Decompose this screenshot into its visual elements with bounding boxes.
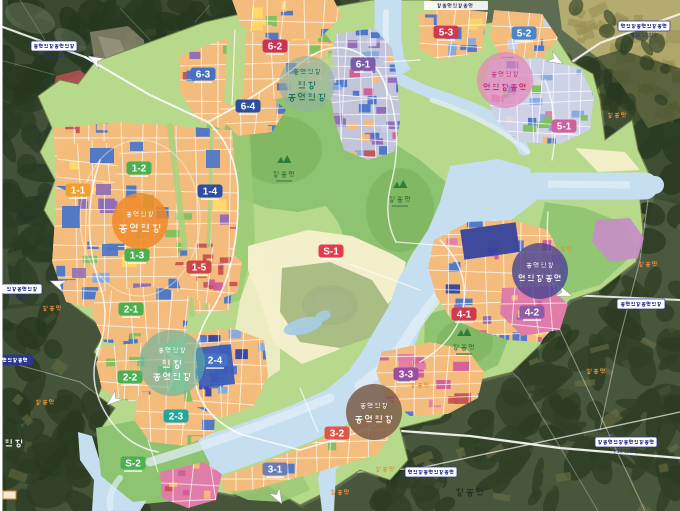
svg-text:S-2: S-2 (125, 459, 141, 470)
svg-text:('16.12.31): ('16.12.31) (632, 33, 656, 39)
svg-text:S-1: S-1 (323, 247, 339, 258)
svg-text:1-1: 1-1 (71, 186, 86, 197)
svg-text:('18.): ('18.) (16, 296, 28, 302)
svg-text:2-3: 2-3 (169, 412, 184, 423)
svg-text:1-4: 1-4 (203, 187, 218, 198)
svg-text:1-3: 1-3 (130, 251, 145, 262)
svg-text:5-1: 5-1 (557, 122, 572, 133)
svg-text:1-2: 1-2 (132, 164, 147, 175)
svg-text:4-1: 4-1 (457, 310, 472, 321)
svg-text:6-4: 6-4 (241, 102, 256, 113)
svg-text:('12.11.26): ('12.11.26) (42, 53, 66, 59)
svg-text:3-3: 3-3 (399, 370, 414, 381)
svg-text:2-1: 2-1 (124, 305, 139, 316)
svg-text:2-4: 2-4 (208, 356, 223, 367)
svg-text:6-2: 6-2 (268, 42, 283, 53)
svg-text:5-2: 5-2 (517, 29, 532, 40)
svg-text:4-2: 4-2 (525, 308, 540, 319)
svg-text:3-1: 3-1 (268, 465, 283, 476)
svg-text:5-3: 5-3 (439, 28, 454, 39)
svg-text:6-3: 6-3 (196, 70, 211, 81)
svg-text:2-2: 2-2 (123, 373, 138, 384)
svg-text:3-2: 3-2 (330, 429, 345, 440)
svg-text:6-1: 6-1 (356, 60, 371, 71)
svg-text:('16.12.28): ('16.12.28) (614, 449, 638, 455)
svg-text:1-5: 1-5 (192, 263, 207, 274)
